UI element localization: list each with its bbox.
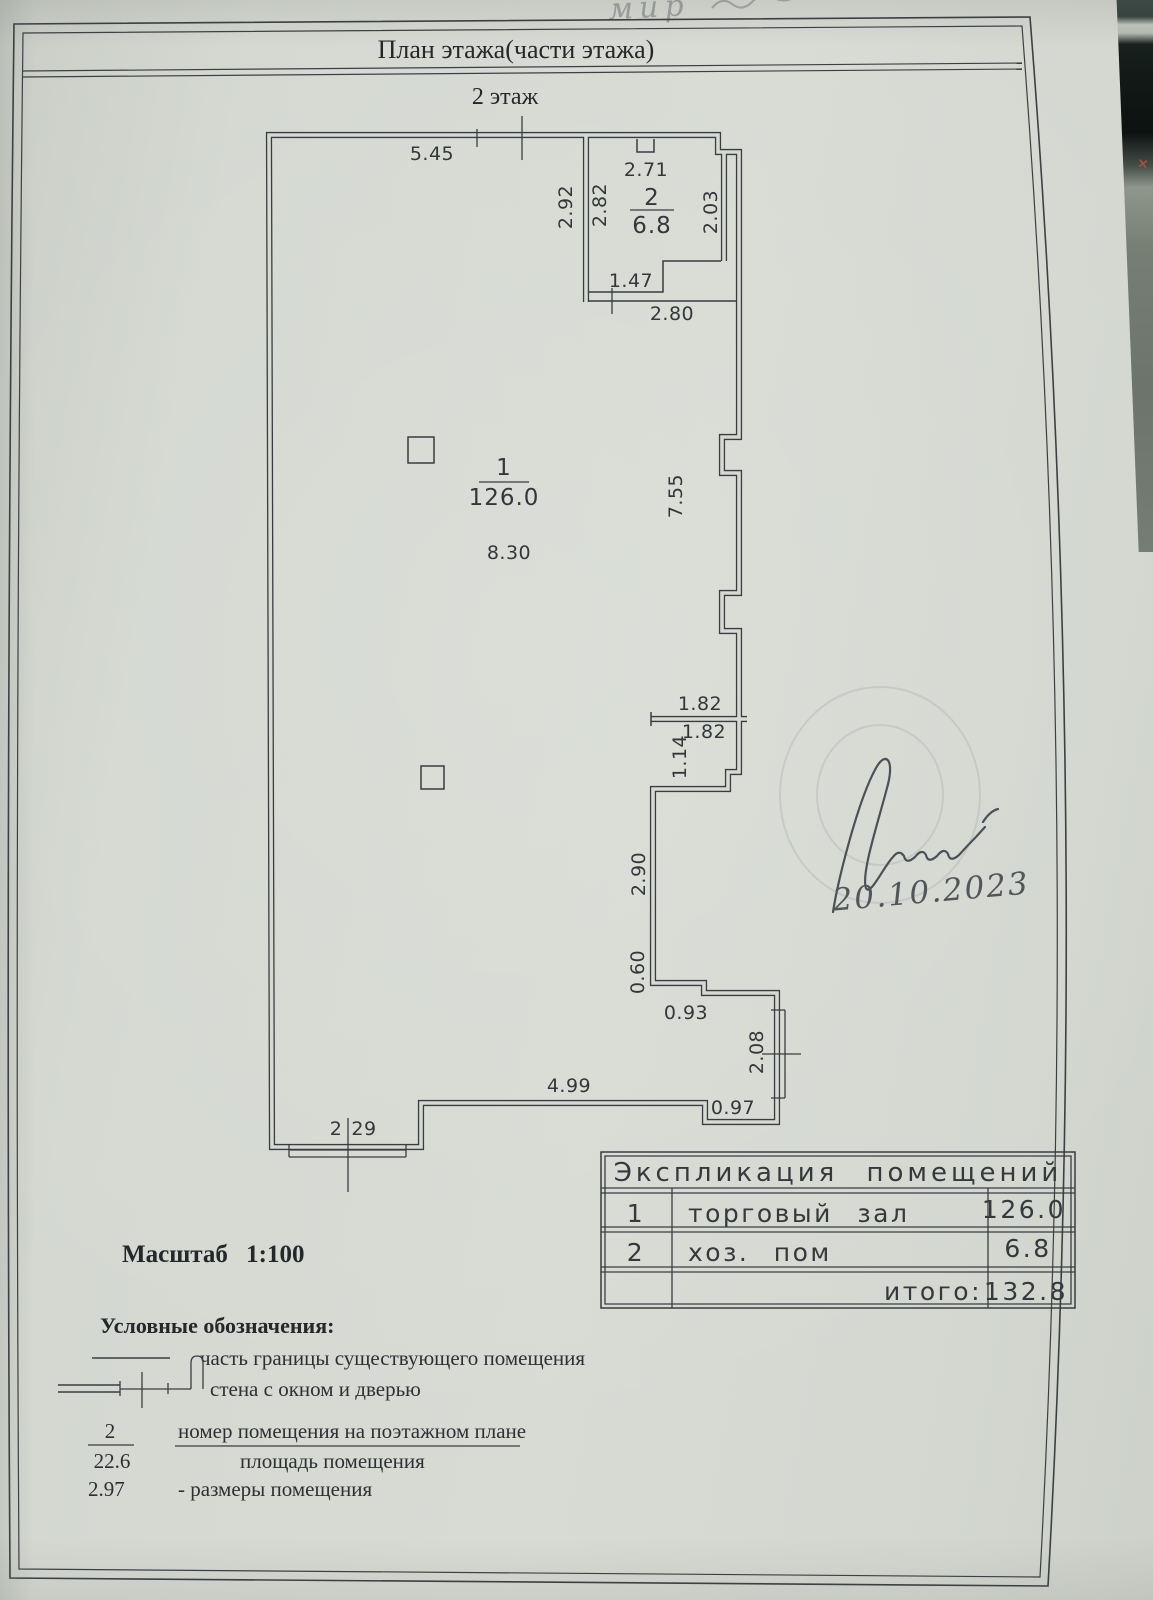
stamp-outline [780,687,980,903]
table-total-row: итого: 132.8 [884,1277,1068,1306]
scale-label: Масштаб 1:100 [122,1241,304,1268]
fraction-bottom: 22.6 [94,1449,131,1473]
dim-wall-093: 0.93 [664,1002,708,1024]
legend-boundary-label: часть границы существующего помещения [200,1346,585,1370]
legend-area-label: площадь помещения [240,1449,425,1473]
signature-date: 20.10.2023 [830,865,1031,918]
legend-wall-label: стена с окном и дверью [210,1377,421,1401]
legend-size-label: - размеры помещения [178,1477,372,1501]
row2-number: 2 [627,1238,645,1267]
dim-bottom-wall: 4.99 [547,1075,591,1097]
table-title: Экспликация помещений [614,1158,1063,1188]
row1-number: 1 [627,1199,645,1228]
dim-bottom-step: 0.97 [711,1097,755,1119]
total-value: 132.8 [984,1277,1068,1306]
dim-room2-right: 2.03 [700,190,722,234]
legend-title: Условные обозначения: [100,1313,334,1338]
dim-room2-door: 1.47 [609,270,653,292]
column-square-upper [408,437,434,463]
row2-name: хоз. пом [688,1238,832,1267]
scanned-floor-plan-page: × мир План этажа(части этажа) 2 этаж [0,0,1153,1600]
column-square-lower [421,766,444,789]
room1-number: 1 [496,455,512,481]
explication-table: Экспликация помещений 1 торговый зал 126… [601,1152,1075,1308]
room-number-fraction-symbol: 2 22.6 [88,1419,134,1473]
dim-partition-top: 1.82 [678,693,722,715]
total-label: итого: [884,1277,982,1306]
stamp-inner [817,725,943,865]
floor-label: 2 этаж [472,84,539,110]
dim-room2-left-outer: 2.92 [555,185,577,229]
dim-window-right: 2.08 [746,1030,768,1074]
dim-room1-right: 7.55 [665,474,687,518]
walls-inner-gap [269,135,777,1147]
floor-plan: 5.45 2.71 2.92 2.82 2.03 1.47 2.80 1 126… [269,116,801,1192]
room2-top-notch [637,139,654,152]
legend-number-label: номер помещения на поэтажном плане [178,1419,526,1443]
document-drawing: План этажа(части этажа) 2 этаж [0,0,1153,1600]
table-row: 1 торговый зал 126.0 [627,1195,1066,1228]
row1-name: торговый зал [688,1199,909,1228]
wall-window-door-symbol [58,1356,203,1408]
signature-block: 20.10.2023 [780,687,1031,919]
dim-room2-bottom: 2.80 [650,303,694,325]
handwriting-scribble [712,0,832,8]
dim-window-bl-b: 29 [351,1118,376,1140]
dim-room2-left-inner: 2.82 [589,183,611,227]
legend-size-example: 2.97 [88,1477,125,1501]
walls [269,135,777,1147]
row2-area: 6.8 [1004,1234,1051,1263]
dim-top-wall: 5.45 [410,143,454,165]
dim-partition-height: 1.14 [669,735,691,779]
room2-area: 6.8 [632,213,672,239]
dim-wall-060: 0.60 [627,950,649,994]
dim-room1-width: 8.30 [487,542,531,564]
legend: Условные обозначения: часть границы суще… [58,1313,585,1501]
dim-window-bl-a: 2 [330,1118,343,1140]
page-title: План этажа(части этажа) [378,35,655,64]
room1-area: 126.0 [469,485,540,511]
dimension-ticks [348,116,801,1192]
fraction-top: 2 [105,1419,116,1443]
row1-area: 126.0 [982,1195,1066,1224]
dim-wall-290: 2.90 [628,852,650,896]
dim-room2-top: 2.71 [624,159,668,181]
room2-number: 2 [644,185,660,211]
